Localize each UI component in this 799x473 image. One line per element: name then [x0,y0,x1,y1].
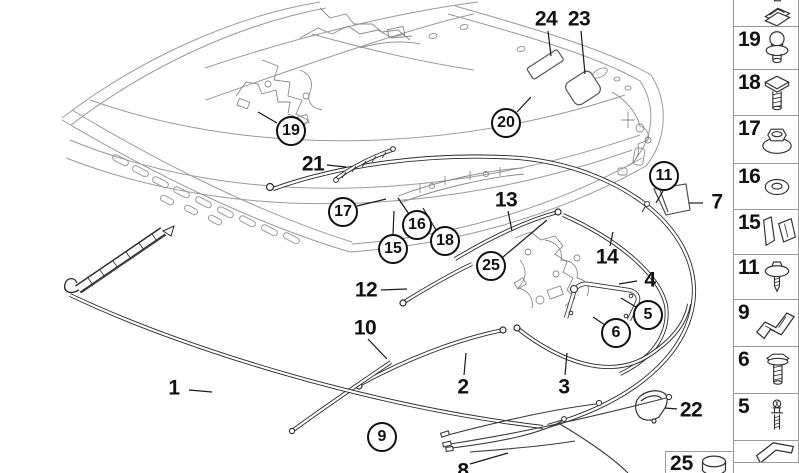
flange-nut-icon [757,121,797,159]
legend-number: 6 [738,348,749,372]
expansion-rivet-icon [757,395,797,439]
callout-label-10[interactable]: 10 [354,318,376,339]
legend-item-9[interactable]: 9 [733,299,799,347]
callout-circle-15[interactable]: 15 [378,234,408,264]
roof-frame [62,2,663,252]
legend-item-16[interactable]: 16 [733,163,799,210]
callout-label-22[interactable]: 22 [680,400,702,421]
z-bracket-icon [753,303,797,343]
callout-circle-9[interactable]: 9 [367,422,397,452]
legend-item-z-clip-icon[interactable] [733,440,799,463]
callout-label-24[interactable]: 24 [535,9,557,30]
callout-label-13[interactable]: 13 [495,190,517,211]
callout-circle-11[interactable]: 11 [649,161,679,191]
legend-item-18[interactable]: 18 [733,69,799,116]
washer-icon [757,170,797,204]
callout-label-21[interactable]: 21 [302,154,324,175]
callout-circle-5[interactable]: 5 [633,300,663,330]
callout-circle-6[interactable]: 6 [601,318,631,348]
washer-screw-icon [757,257,797,297]
callout-label-3[interactable]: 3 [558,377,569,398]
callout-circle-25[interactable]: 25 [476,251,506,281]
hardware-legend-sidebar: 191817161511965 [733,0,799,463]
molding-12[interactable] [400,264,472,306]
callout-label-12[interactable]: 12 [355,280,377,301]
callout-label-1[interactable]: 1 [168,378,179,399]
legend-item-17[interactable]: 17 [733,115,799,164]
callout-circle-20[interactable]: 20 [491,108,521,138]
molding-2[interactable] [356,327,506,389]
callout-label-14[interactable]: 14 [596,247,618,268]
callout-label-4[interactable]: 4 [644,270,655,291]
callout-circle-18[interactable]: 18 [430,226,460,256]
legend-item-retainer-clip-icon[interactable] [733,0,799,27]
ball-stud-icon [757,28,797,68]
callout-label-2[interactable]: 2 [457,377,468,398]
legend-item-5[interactable]: 5 [733,393,799,441]
legend-item-15[interactable]: 15 [733,209,799,255]
callout-label-8[interactable]: 8 [457,461,468,473]
legend-item-19[interactable]: 19 [733,26,799,70]
legend-number: 25 [670,452,693,473]
legend-item-11[interactable]: 11 [733,254,799,300]
callout-circle-16[interactable]: 16 [402,210,432,240]
parts-diagram-page: 1920171615182511569242321131412107423122… [0,0,799,473]
legend-item-25[interactable]: 25 [665,451,734,473]
callout-circle-19[interactable]: 19 [276,116,306,146]
callout-circle-17[interactable]: 17 [328,197,358,227]
callout-label-23[interactable]: 23 [568,9,590,30]
retainer-clip-icon [757,0,797,27]
cap-22[interactable] [636,391,668,423]
hex-bolt-icon [757,348,797,392]
patch-parts [527,49,603,107]
seal-1[interactable] [65,226,543,427]
molding-14[interactable] [563,215,667,374]
legend-number: 5 [738,395,749,419]
patch-24[interactable] [527,49,564,80]
square-head-bolt-icon [757,71,797,115]
angle-clip-icon [757,212,797,252]
z-clip-icon [753,440,797,463]
callout-label-7[interactable]: 7 [711,192,722,213]
cap-icon [699,454,729,473]
legend-number: 9 [738,301,749,325]
patch-23[interactable] [563,69,602,107]
legend-item-6[interactable]: 6 [733,346,799,394]
